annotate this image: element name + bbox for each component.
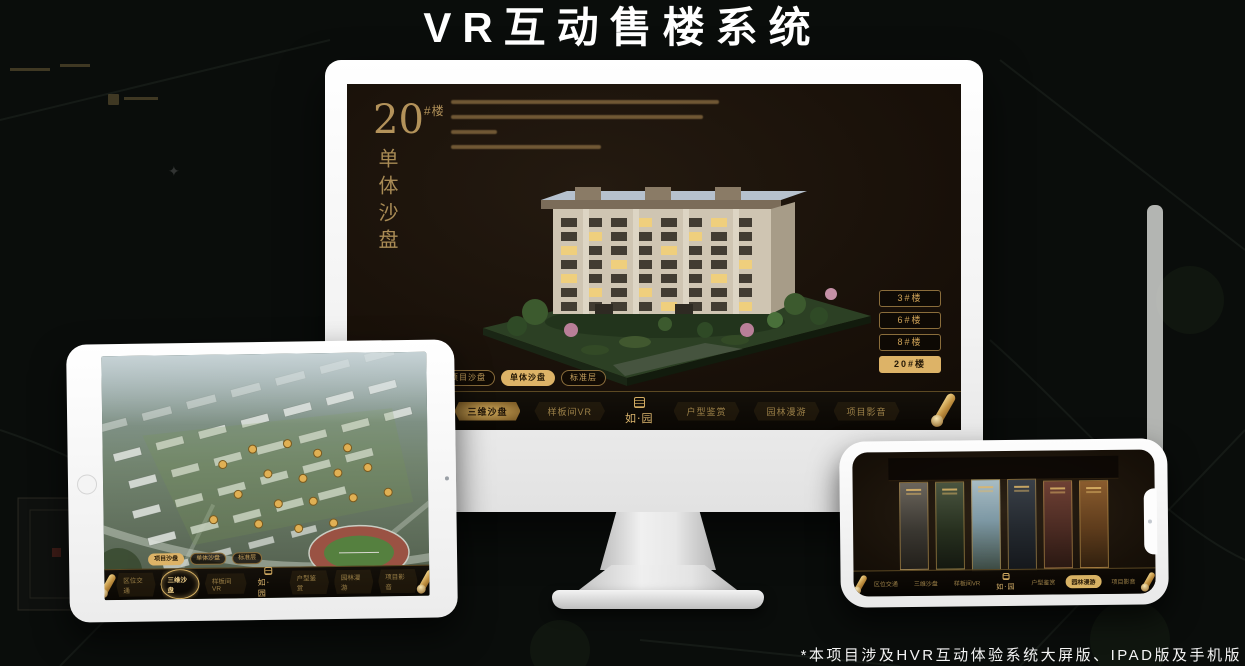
- floor-button[interactable]: 6#楼: [879, 312, 941, 329]
- brand-logo: 如·园: [625, 397, 654, 426]
- camera-icon: [445, 476, 449, 480]
- nav-item-garden-tour[interactable]: 园林漫游: [754, 402, 820, 421]
- view-tabs: 项目沙盘 单体沙盘 标准层: [148, 552, 262, 566]
- tablet-screen: 项目沙盘 单体沙盘 标准层 区位交通 三维沙盘 样板间VR 如·园 户型鉴赏 园…: [101, 352, 429, 601]
- scroll-icon[interactable]: [932, 392, 957, 426]
- gallery-card[interactable]: [1007, 479, 1037, 571]
- tab-single-sandbox[interactable]: 单体沙盘: [190, 553, 226, 566]
- nav-item-location[interactable]: 区位交通: [868, 577, 904, 590]
- gallery-card[interactable]: [971, 479, 1001, 571]
- tab-project-sandbox[interactable]: 项目沙盘: [148, 553, 184, 566]
- stage: ✦ VR互动售楼系统 20#楼 单体沙盘: [0, 0, 1245, 666]
- nav-item-garden-tour[interactable]: 园林漫游: [1065, 575, 1101, 588]
- tablet-device: 项目沙盘 单体沙盘 标准层 区位交通 三维沙盘 样板间VR 如·园 户型鉴赏 园…: [66, 339, 458, 622]
- nav-item-unit-plans[interactable]: 户型鉴赏: [289, 570, 329, 595]
- bottom-nav: 区位交通 三维沙盘 样板间VR 如·园 户型鉴赏 园林漫游 项目影音: [853, 567, 1155, 596]
- tab-standard-floor[interactable]: 标准层: [561, 370, 606, 386]
- nav-item-project-media[interactable]: 项目影音: [378, 569, 418, 594]
- footnote: *本项目涉及HVR互动体验系统大屏版、IPAD版及手机版: [801, 644, 1242, 665]
- nav-item-project-media[interactable]: 项目影音: [834, 402, 900, 421]
- tab-single-sandbox[interactable]: 单体沙盘: [501, 370, 555, 386]
- gallery-card[interactable]: [935, 481, 965, 569]
- phone-notch: [1144, 488, 1158, 554]
- svg-text:✦: ✦: [168, 163, 180, 179]
- brand-logo-text: 如·园: [996, 582, 1015, 592]
- nav-item-unit-plans[interactable]: 户型鉴赏: [674, 402, 740, 421]
- brand-logo-text: 如·园: [625, 410, 654, 426]
- scroll-icon[interactable]: [417, 569, 429, 593]
- section-heading: 20#楼 单体沙盘: [373, 100, 445, 268]
- page-title: VR互动售楼系统: [0, 0, 1245, 56]
- nav-item-garden-tour[interactable]: 园林漫游: [334, 569, 374, 594]
- nav-item-location[interactable]: 区位交通: [116, 572, 156, 597]
- interior-backdrop: [888, 456, 1118, 481]
- nav-item-showroom-vr[interactable]: 样板间VR: [948, 576, 986, 589]
- nav-item-unit-plans[interactable]: 户型鉴赏: [1025, 575, 1061, 588]
- phone-device: 区位交通 三维沙盘 样板间VR 如·园 户型鉴赏 园林漫游 项目影音: [839, 438, 1169, 607]
- seal-icon: [264, 567, 272, 575]
- home-button[interactable]: [77, 474, 97, 494]
- scroll-icon[interactable]: [101, 573, 116, 597]
- floor-button-group: 3#楼 6#楼 8#楼 20#楼: [879, 290, 941, 373]
- floor-button[interactable]: 8#楼: [879, 334, 941, 351]
- gallery-card[interactable]: [899, 482, 929, 570]
- gallery-card[interactable]: [1079, 480, 1109, 568]
- building-model-image: [475, 144, 883, 396]
- nav-item-3d-sandbox[interactable]: 三维沙盘: [454, 402, 520, 421]
- nav-item-showroom-vr[interactable]: 样板间VR: [205, 573, 247, 595]
- scroll-icon[interactable]: [854, 574, 869, 593]
- nav-item-3d-sandbox[interactable]: 三维沙盘: [160, 569, 200, 600]
- phone-screen: 区位交通 三维沙盘 样板间VR 如·园 户型鉴赏 园林漫游 项目影音: [852, 449, 1155, 596]
- scene-gallery: [899, 480, 1109, 572]
- floor-button[interactable]: 3#楼: [879, 290, 941, 307]
- bottom-nav: 区位交通 三维沙盘 样板间VR 如·园 户型鉴赏 园林漫游 项目影音: [104, 565, 429, 601]
- scroll-icon[interactable]: [1141, 571, 1156, 590]
- section-title-vertical: 单体沙盘: [373, 148, 402, 268]
- tab-standard-floor[interactable]: 标准层: [232, 552, 262, 564]
- brand-logo: 如·园: [257, 567, 278, 599]
- nav-item-showroom-vr[interactable]: 样板间VR: [534, 402, 605, 421]
- monitor-stand-base: [552, 590, 764, 609]
- brand-logo: 如·园: [996, 573, 1015, 592]
- seal-icon: [1002, 573, 1009, 580]
- gallery-card[interactable]: [1043, 480, 1073, 568]
- building-number-suffix: #楼: [424, 104, 445, 118]
- building-number: 20: [373, 97, 424, 143]
- view-tabs: 项目沙盘 单体沙盘 标准层: [441, 370, 606, 386]
- brand-logo-text: 如·园: [258, 577, 279, 599]
- monitor-stand-neck: [600, 512, 716, 570]
- seal-icon: [634, 397, 645, 408]
- floor-button-active[interactable]: 20#楼: [879, 356, 941, 373]
- nav-item-project-media[interactable]: 项目影音: [1105, 575, 1141, 588]
- nav-item-3d-sandbox[interactable]: 三维沙盘: [908, 577, 944, 590]
